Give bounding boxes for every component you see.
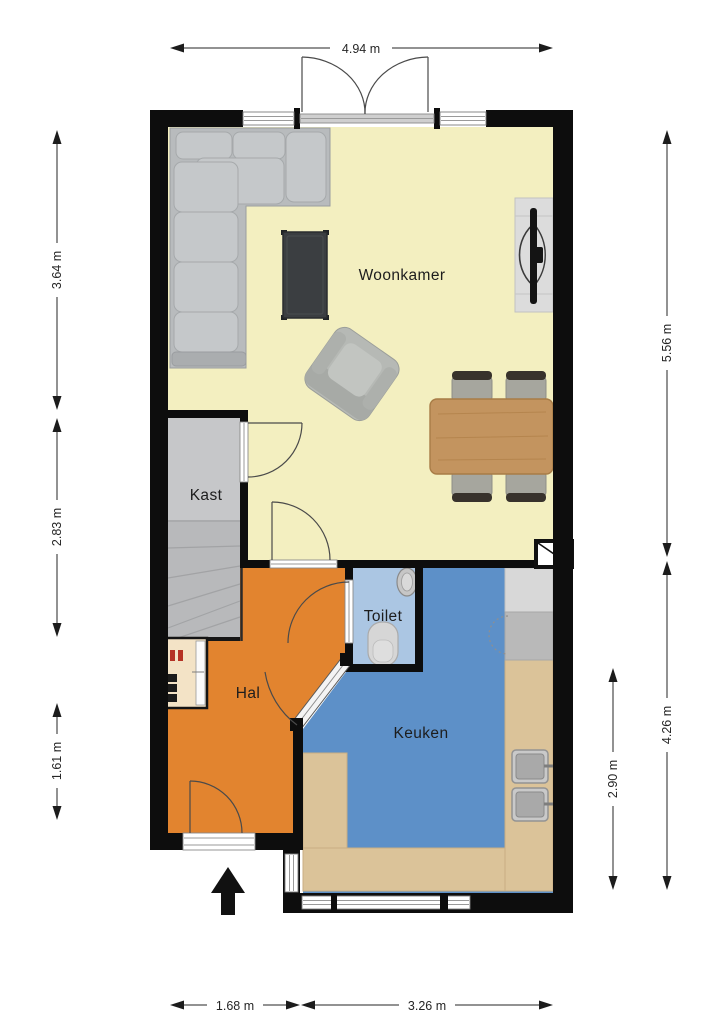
svg-text:2.83 m: 2.83 m	[50, 508, 64, 546]
dim-top-label: 4.94 m	[342, 42, 380, 56]
window-icon	[302, 894, 470, 911]
dining-table-icon	[430, 399, 553, 474]
dim-bottom-1: 1.68 m	[170, 997, 300, 1013]
kitchen-sink-icon	[512, 750, 554, 783]
dim-left-3: 1.61 m	[49, 703, 65, 820]
svg-text:3.26 m: 3.26 m	[408, 999, 446, 1013]
svg-text:5.56 m: 5.56 m	[660, 324, 674, 362]
dim-right-inner: 2.90 m	[605, 668, 621, 890]
dim-left-1: 3.64 m	[49, 130, 65, 410]
window-icon	[285, 854, 298, 892]
dim-left-2: 2.83 m	[49, 418, 65, 637]
dim-right-2: 4.26 m	[659, 561, 675, 890]
window-icon	[440, 112, 486, 125]
hal-label: Hal	[236, 685, 260, 702]
svg-text:1.68 m: 1.68 m	[216, 999, 254, 1013]
floor-plan: 4.94 m 3.64 m 2.83 m 1.61 m 5.56 m 4.26 …	[0, 0, 724, 1024]
svg-text:1.61 m: 1.61 m	[50, 742, 64, 780]
svg-text:4.26 m: 4.26 m	[660, 706, 674, 744]
woonkamer-label: Woonkamer	[359, 267, 446, 284]
coffee-table-icon	[281, 230, 329, 320]
hall-cabinet-icon	[163, 638, 207, 708]
tv-cabinet-icon	[515, 198, 553, 312]
svg-text:3.64 m: 3.64 m	[50, 251, 64, 289]
keuken-label: Keuken	[394, 725, 449, 742]
kast-label: Kast	[190, 487, 223, 504]
entrance-arrow-icon	[211, 867, 245, 915]
window-icon	[243, 112, 294, 125]
kitchen-sink-icon	[512, 788, 554, 821]
toilet-bowl-icon	[368, 622, 398, 666]
stairs-floor	[168, 520, 240, 640]
dim-right-1: 5.56 m	[659, 130, 675, 557]
kast-floor	[168, 418, 240, 520]
svg-text:2.90 m: 2.90 m	[606, 760, 620, 798]
toilet-label: Toilet	[364, 608, 403, 625]
floor-plan-page: 4.94 m 3.64 m 2.83 m 1.61 m 5.56 m 4.26 …	[0, 0, 724, 1024]
dim-top: 4.94 m	[170, 40, 553, 56]
fridge-icon	[505, 568, 553, 612]
dim-bottom-2: 3.26 m	[301, 997, 553, 1013]
french-doors-icon	[300, 57, 434, 123]
